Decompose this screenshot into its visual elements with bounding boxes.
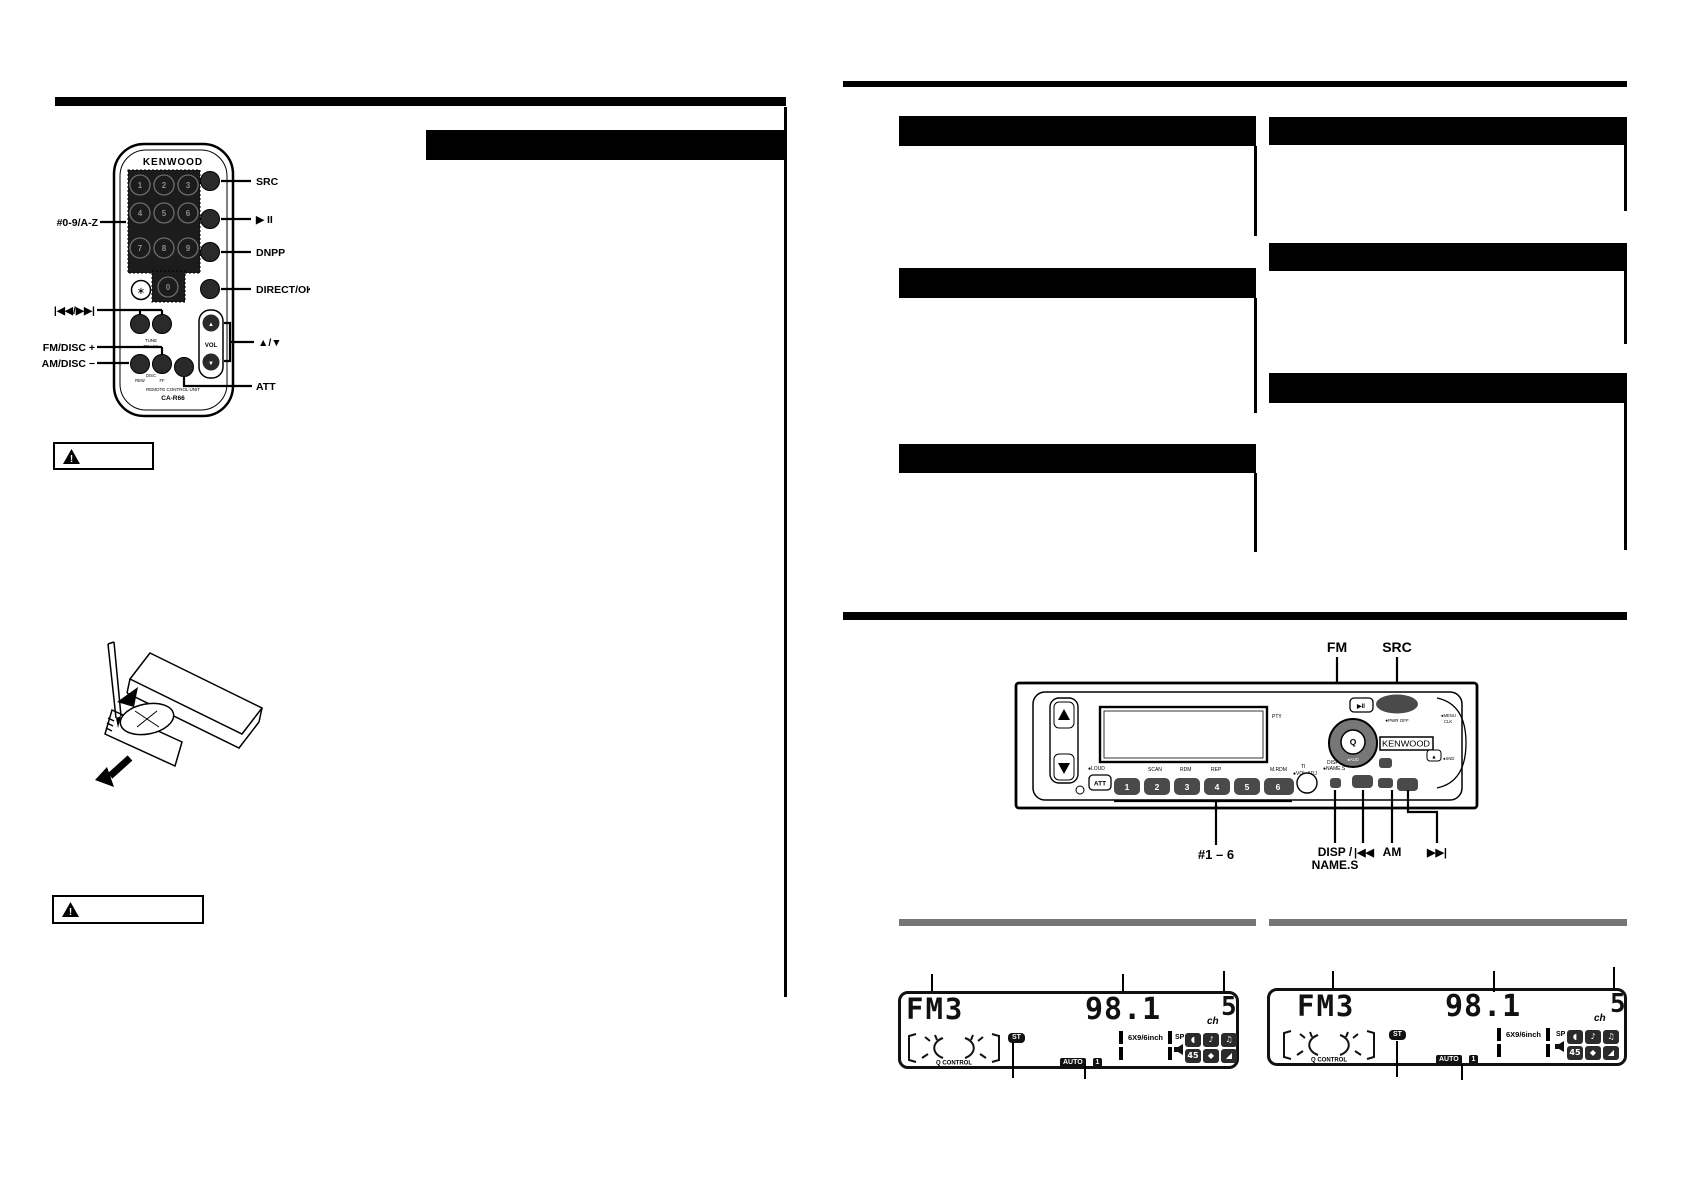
remote-model: CA-R66 <box>161 395 185 402</box>
auto-indicator: AUTO <box>1060 1058 1086 1068</box>
callout-tick <box>1493 971 1495 992</box>
dsp-icon-grid: ◖ ♪ ♫ 45 ◆ ◢ <box>1567 1030 1619 1060</box>
speaker-icon <box>1174 1044 1184 1055</box>
callout-direct-ok: DIRECT/OK <box>256 284 310 296</box>
src-button <box>201 172 220 191</box>
am-disc-minus-button <box>131 355 150 374</box>
small-knob <box>1297 773 1317 793</box>
svg-text:●PWR OFF: ●PWR OFF <box>1385 718 1409 723</box>
volume-control: ▲ VOL ▼ <box>199 310 223 378</box>
svg-text:0: 0 <box>166 283 171 292</box>
right-mid-rule <box>843 612 1627 620</box>
callout-up-down: ▲/▼ <box>258 337 282 349</box>
svg-text:●MENU: ●MENU <box>1441 713 1456 718</box>
dsp-icon: ♪ <box>1203 1033 1219 1047</box>
dsp-icon: ◢ <box>1603 1046 1619 1060</box>
section-drop-rule <box>1624 271 1627 344</box>
callout-play-pause: ▶ II <box>255 214 273 226</box>
callout-tick <box>931 974 933 991</box>
callout-seek-back: |◀◀ <box>1354 847 1375 859</box>
section-drop-rule <box>1624 145 1627 211</box>
section-drop-rule <box>1624 403 1627 550</box>
seek-fwd-button <box>153 315 172 334</box>
band-readout: FM3 <box>906 992 964 1026</box>
svg-text:RDM: RDM <box>1180 767 1191 773</box>
warning-icon: ! <box>62 448 81 465</box>
svg-text:8: 8 <box>162 244 167 253</box>
svg-text:▼: ▼ <box>208 361 214 367</box>
dsp-icon: 45 <box>1185 1049 1201 1063</box>
callout-tick <box>1122 974 1124 991</box>
display-window <box>1100 707 1267 762</box>
dsp-icon: ◆ <box>1203 1049 1219 1063</box>
callout-dnpp: DNPP <box>256 247 285 259</box>
svg-text:3: 3 <box>186 181 191 190</box>
svg-text:VOL: VOL <box>205 343 218 349</box>
callout-tick <box>1461 1064 1463 1080</box>
section-drop-rule <box>1254 146 1257 236</box>
seek-back-button <box>131 315 150 334</box>
dsp-icon: 45 <box>1567 1046 1583 1060</box>
slide-arrow <box>95 758 130 787</box>
seek-back-button <box>1352 775 1373 788</box>
svg-text:3: 3 <box>1185 782 1190 792</box>
callout-src: SRC <box>1382 639 1412 655</box>
warning-box-1: ! <box>53 442 154 470</box>
callout-tick <box>1332 971 1334 988</box>
play-pause-button <box>201 210 220 229</box>
lcd-display-2: FM3 98.1 ch 5 Q CONTROL ST AUTO 1 6X9/6i… <box>1267 988 1627 1066</box>
svg-text:4: 4 <box>1215 782 1220 792</box>
dsp-icon-grid: ◖ ♪ ♫ 45 ◆ ◢ <box>1185 1033 1237 1063</box>
svg-text:DISC: DISC <box>146 373 156 378</box>
volume-knob: Q ●AUD <box>1329 719 1377 767</box>
dsp-icon: ◆ <box>1585 1046 1601 1060</box>
channel-label: ch <box>1207 1016 1219 1027</box>
left-top-rule <box>55 97 786 106</box>
section-header-bar <box>899 268 1256 298</box>
svg-text:●AUD: ●AUD <box>1347 757 1358 762</box>
channel-readout: 5 <box>1221 992 1237 1022</box>
frequency-readout: 98.1 <box>1085 992 1161 1027</box>
dsp-icon: ♪ <box>1585 1030 1601 1044</box>
dsp-icon: ◖ <box>1567 1030 1583 1044</box>
warning-box-2: ! <box>52 895 204 924</box>
callout-keypad: #0-9/A-Z <box>57 217 99 229</box>
fm-disc-plus-button <box>153 355 172 374</box>
section-header-bar <box>1269 117 1627 145</box>
svg-text:FF: FF <box>159 378 165 383</box>
svg-text:●SND: ●SND <box>1443 756 1454 761</box>
display-section-divider <box>1269 919 1627 926</box>
speaker-size-indicator: 6X9/6inch <box>1497 1028 1550 1060</box>
head-unit-diagram: FM SRC PTY ATT 1 2 <box>940 630 1485 880</box>
warning-icon: ! <box>61 901 80 918</box>
section-drop-rule <box>1254 473 1257 552</box>
callout-seek-fwd: ▶▶| <box>1426 847 1447 859</box>
am-button <box>1378 778 1393 788</box>
callout-tick <box>1223 971 1225 991</box>
callout-src: SRC <box>256 176 279 188</box>
callout-presets: #1 – 6 <box>1198 847 1234 862</box>
stereo-indicator: ST <box>1389 1030 1406 1040</box>
svg-text:●LOUD: ●LOUD <box>1088 766 1105 772</box>
direct-ok-button <box>201 280 220 299</box>
remote-control-diagram: KENWOOD 1 2 3 4 5 6 7 8 9 0 <box>40 140 310 440</box>
section-header-bar <box>1269 243 1627 271</box>
svg-text:TI: TI <box>1301 764 1305 770</box>
svg-text:5: 5 <box>1245 782 1250 792</box>
callout-tick <box>1012 1042 1014 1078</box>
auto-number: 1 <box>1093 1058 1102 1068</box>
svg-text:7: 7 <box>138 244 143 253</box>
svg-text:REP: REP <box>1211 767 1222 773</box>
svg-text:REW: REW <box>135 378 145 383</box>
dnpp-button <box>201 243 220 262</box>
disp-button <box>1330 778 1341 788</box>
svg-text:4: 4 <box>138 209 143 218</box>
svg-text:M.RDM: M.RDM <box>1270 767 1287 773</box>
right-top-rule <box>843 81 1627 87</box>
att-button <box>175 358 194 377</box>
channel-label: ch <box>1594 1013 1606 1024</box>
svg-text:!: ! <box>69 907 72 918</box>
reset-hole <box>1076 786 1084 794</box>
callout-tick <box>1396 1041 1398 1077</box>
svg-text:ATT: ATT <box>1094 781 1106 788</box>
remote-unit-label: REMOTE CONTROL UNIT <box>146 387 200 392</box>
section-header-bar <box>899 444 1256 473</box>
callout-seek: |◀◀/▶▶| <box>54 305 95 317</box>
svg-text:▶II: ▶II <box>1356 703 1365 710</box>
battery-diagram <box>90 630 290 810</box>
svg-text:TUNE: TUNE <box>145 338 157 343</box>
callout-name-s: NAME.S <box>1312 858 1359 872</box>
section-header-bar <box>1269 373 1627 403</box>
sp-label: SP <box>1556 1031 1565 1038</box>
frequency-readout: 98.1 <box>1445 989 1521 1024</box>
remote-brand: KENWOOD <box>143 157 203 168</box>
svg-text:6: 6 <box>1276 782 1281 792</box>
section-drop-rule <box>1254 298 1257 413</box>
svg-text:▲: ▲ <box>208 322 214 328</box>
callout-am: AM <box>1383 845 1402 859</box>
svg-text:!: ! <box>70 454 73 465</box>
channel-readout: 5 <box>1610 989 1626 1019</box>
callout-disp: DISP / <box>1318 845 1353 859</box>
svg-text:5: 5 <box>162 209 167 218</box>
section-header-bar <box>899 116 1256 146</box>
callout-fm-disc: FM/DISC + <box>43 342 95 354</box>
svg-text:2: 2 <box>162 181 167 190</box>
dsp-icon: ◢ <box>1221 1049 1237 1063</box>
speaker-size-indicator: 6X9/6inch <box>1119 1031 1172 1063</box>
svg-text:2: 2 <box>1155 782 1160 792</box>
dsp-icon: ♫ <box>1603 1030 1619 1044</box>
spectrum-analyzer: Q CONTROL <box>1280 1028 1378 1063</box>
svg-text:●NAME.S: ●NAME.S <box>1323 766 1346 772</box>
left-section-header-bar <box>426 130 786 160</box>
seek-fwd-button <box>1397 778 1418 791</box>
svg-text:6: 6 <box>186 209 191 218</box>
svg-text:9: 9 <box>186 244 191 253</box>
display-section-divider <box>899 919 1256 926</box>
svg-text:SCAN: SCAN <box>1148 767 1162 773</box>
callout-tick <box>1084 1064 1086 1079</box>
svg-text:1: 1 <box>138 181 143 190</box>
fm-button <box>1379 758 1392 768</box>
band-readout: FM3 <box>1297 989 1355 1023</box>
callout-fm: FM <box>1327 639 1347 655</box>
stereo-indicator: ST <box>1008 1033 1025 1043</box>
callout-tick <box>1613 967 1615 988</box>
manual-page: KENWOOD 1 2 3 4 5 6 7 8 9 0 <box>0 0 1684 1190</box>
q-control-label: Q CONTROL <box>936 1061 972 1067</box>
head-unit-brand: KENWOOD <box>1382 740 1430 749</box>
dsp-icon: ♫ <box>1221 1033 1237 1047</box>
callout-am-disc: AM/DISC − <box>42 358 95 370</box>
spectrum-analyzer: Q CONTROL <box>905 1031 1003 1066</box>
svg-text:CLK: CLK <box>1444 719 1452 724</box>
speaker-icon <box>1555 1041 1565 1052</box>
lcd-display-1: FM3 98.1 ch 5 Q CONTROL ST AUTO 1 6X9/6i… <box>898 991 1239 1069</box>
callout-att: ATT <box>256 381 276 393</box>
q-control-label: Q CONTROL <box>1311 1058 1347 1064</box>
asterisk-key: ∗ <box>132 281 151 300</box>
svg-text:1: 1 <box>1125 782 1130 792</box>
sp-label: SP <box>1175 1034 1184 1041</box>
pty-label: PTY <box>1272 714 1282 720</box>
auto-indicator: AUTO <box>1436 1055 1462 1065</box>
dsp-icon: ◖ <box>1185 1033 1201 1047</box>
svg-text:∗: ∗ <box>137 286 145 297</box>
src-button <box>1376 695 1418 714</box>
svg-text:▲: ▲ <box>1431 755 1436 761</box>
svg-text:Q: Q <box>1350 737 1357 747</box>
auto-number: 1 <box>1469 1055 1478 1065</box>
left-column-divider <box>784 107 787 997</box>
